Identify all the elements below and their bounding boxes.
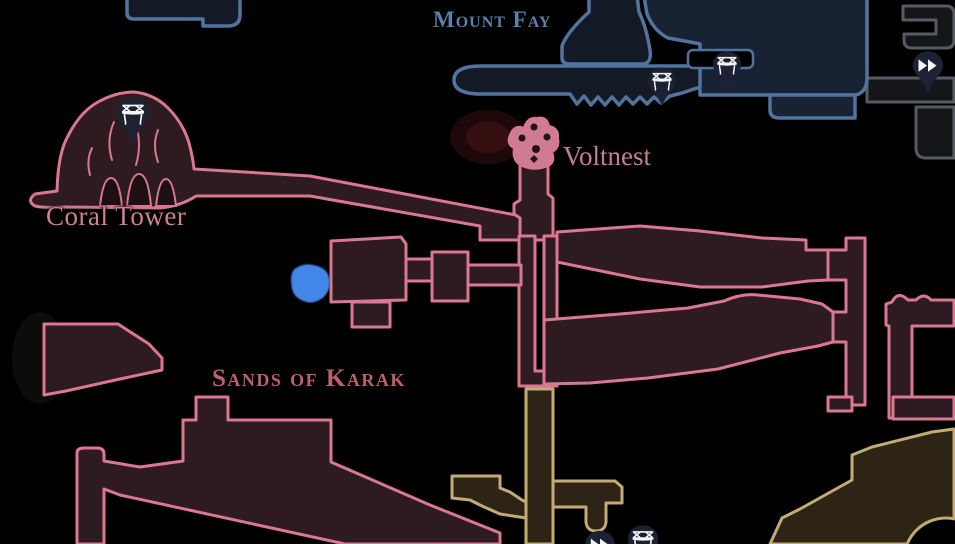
region-unexplored-corridor (867, 78, 954, 102)
bench-marker-south[interactable] (628, 525, 658, 544)
player-marker-blob[interactable] (291, 265, 329, 302)
region-unexplored-room-mid (916, 107, 954, 158)
region-sands-upper-band (557, 226, 828, 287)
region-sands-corridor-small (406, 259, 432, 281)
region-sands-coral-tower (31, 92, 522, 240)
region-sands-room-below (352, 302, 390, 327)
region-mount-fay-wing (454, 66, 722, 105)
region-wastes-west-room (452, 476, 526, 518)
region-mount-fay-funnel (562, 0, 650, 64)
coral-tower-arches (100, 174, 176, 206)
region-sands-southwest-mass (77, 397, 500, 544)
region-wastes-east-branch (553, 481, 622, 531)
region-unexplored-room-top (903, 6, 954, 48)
faint-red-glow-core (466, 121, 510, 153)
world-map-screen: Mount Fay Voltnest Coral Tower Sands of … (0, 0, 955, 544)
world-map-canvas[interactable] (0, 0, 955, 544)
region-sands-connector (468, 265, 521, 285)
fast-travel-marker-south[interactable] (585, 531, 614, 544)
region-mount-fay-room-topleft (127, 0, 240, 26)
region-sands-lower-band (544, 295, 833, 384)
region-sands-room-se1 (828, 397, 852, 411)
region-mount-fay-corridor-low (770, 95, 855, 118)
region-sands-east-column (828, 238, 865, 405)
region-sands-voltnest-shaft (514, 162, 553, 240)
region-wastes-shaft (526, 389, 553, 544)
region-sands-wedge (44, 324, 162, 395)
region-sands-room-big (331, 237, 406, 302)
region-sands-room-small (432, 252, 468, 301)
region-sands-room-se2 (893, 397, 954, 419)
